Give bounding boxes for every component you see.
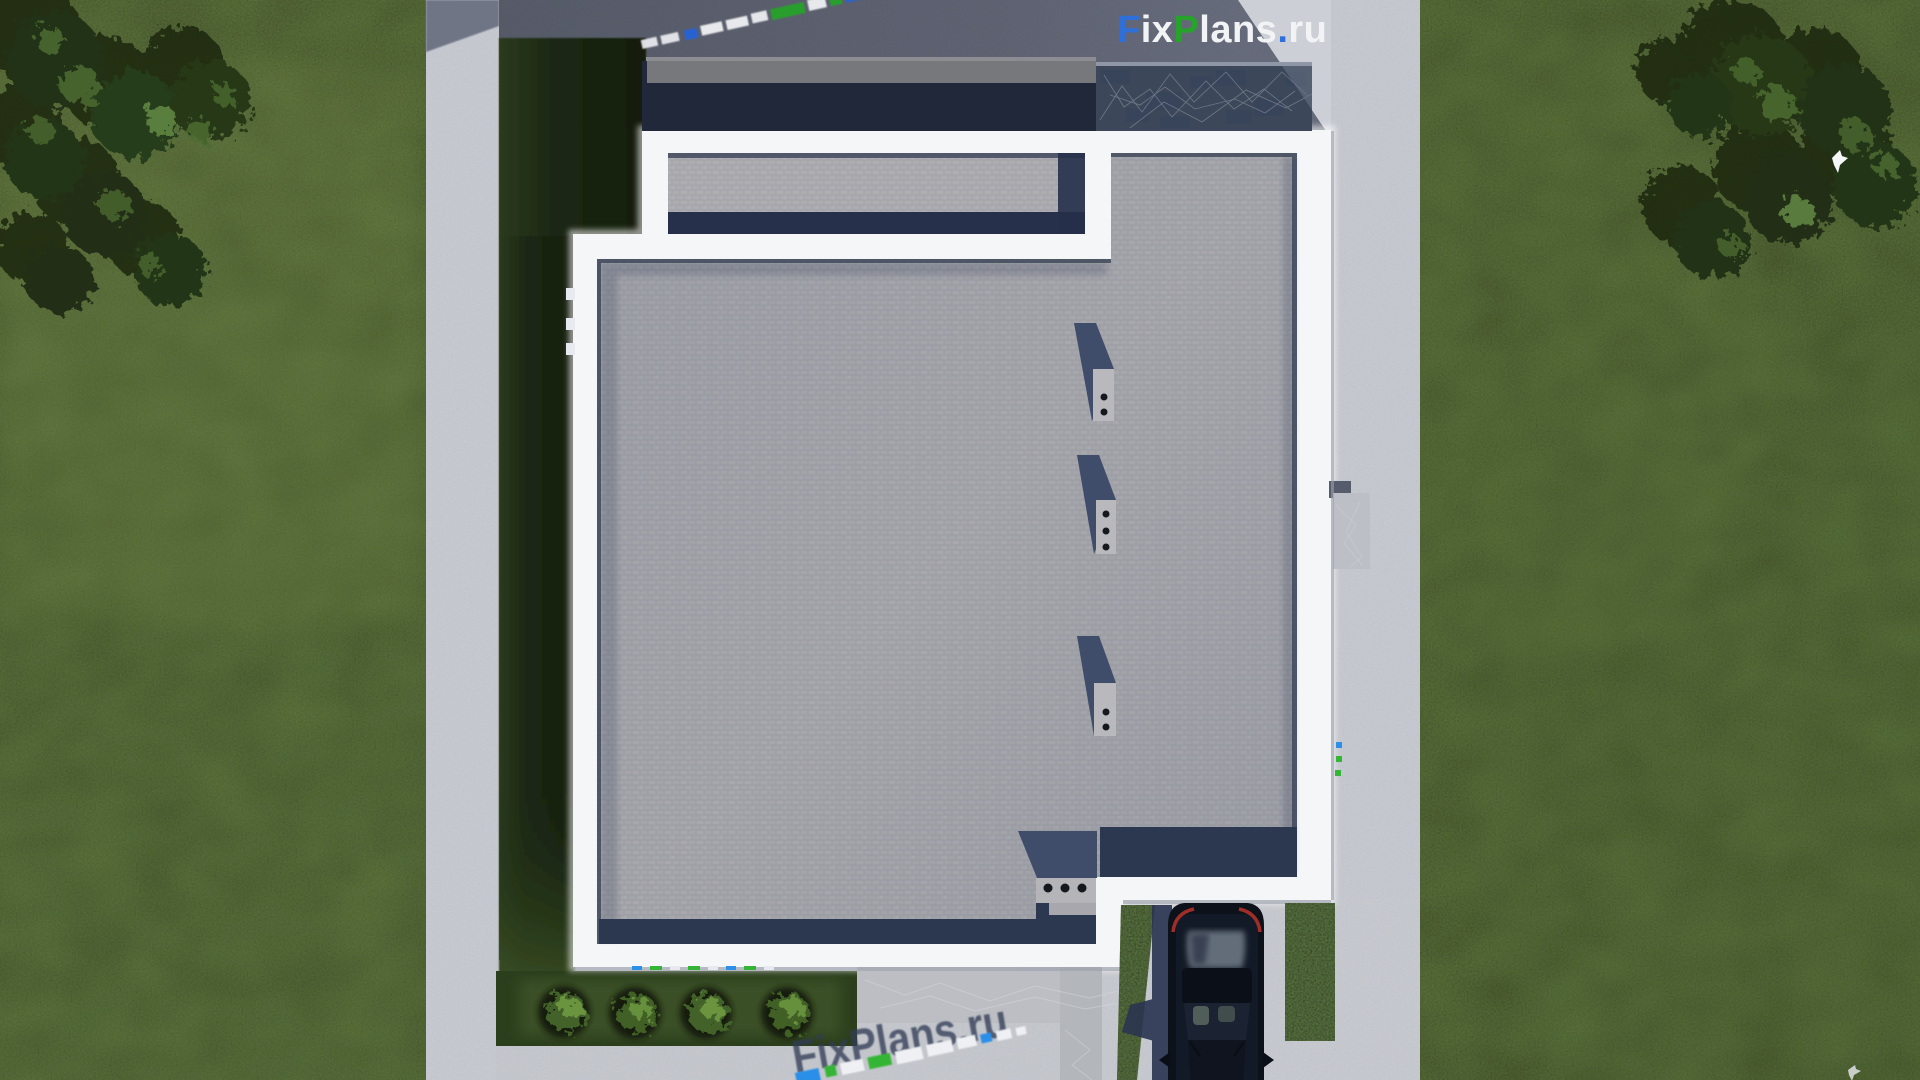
svg-text:FixPlans.ru: FixPlans.ru [1117,9,1327,51]
